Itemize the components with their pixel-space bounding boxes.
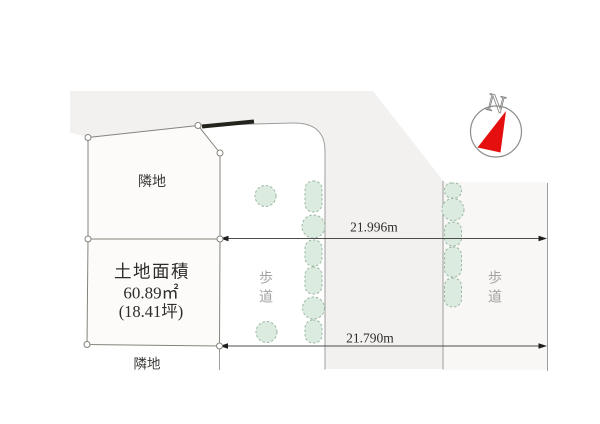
dimension-top-value: 21.996m xyxy=(350,220,398,234)
sidewalk-label-left: 歩道 xyxy=(257,270,271,308)
adjacent-land-label-bottom: 隣地 xyxy=(134,357,161,371)
north-compass-icon: N xyxy=(471,89,522,157)
land-area-title: 土地面積 xyxy=(114,263,190,281)
tree-icon xyxy=(255,186,277,343)
land-area-sqm: 60.89㎡ xyxy=(123,285,178,302)
site-plan-drawing: N xyxy=(0,0,600,424)
land-plot-site-plan: N 隣地 隣地 土地面積 60.89㎡ (18.41坪) 21.996m 21.… xyxy=(0,0,600,424)
land-area-tsubo: (18.41坪) xyxy=(119,303,184,320)
sidewalk-label-right: 歩道 xyxy=(486,270,500,308)
adjacent-land-label-top: 隣地 xyxy=(138,176,166,190)
dimension-bottom-value: 21.790m xyxy=(346,331,394,345)
hedge-row-left-icon xyxy=(302,181,325,343)
